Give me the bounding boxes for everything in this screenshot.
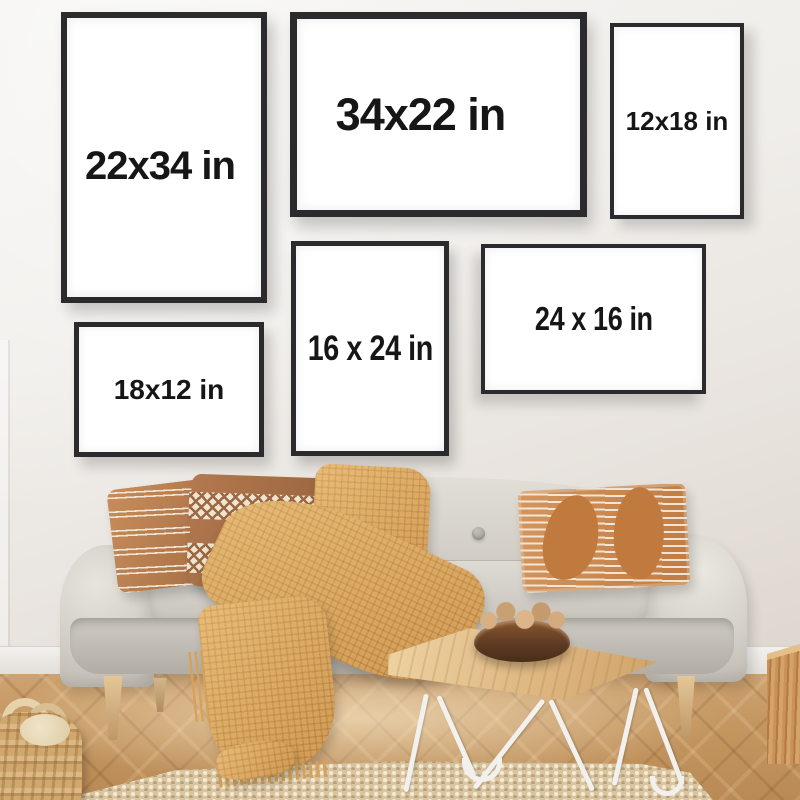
bowl-of-nuts — [480, 602, 566, 632]
basket-contents — [20, 714, 70, 746]
frame-label: 18x12 in — [114, 374, 225, 406]
pillow-leaf-shape — [613, 487, 665, 580]
size-frame-34x22: 34x22 in — [290, 12, 587, 217]
frame-label: 24 x 16 in — [535, 300, 653, 338]
pillow-leaf-shape — [539, 492, 603, 584]
door-edge-line — [8, 340, 10, 658]
frame-label: 16 x 24 in — [307, 329, 432, 369]
room-scene: 22x34 in 34x22 in 12x18 in 16 x 24 in 24… — [0, 0, 800, 800]
size-frame-12x18: 12x18 in — [610, 23, 744, 219]
size-frame-24x16: 24 x 16 in — [481, 244, 706, 394]
size-frame-22x34: 22x34 in — [61, 12, 267, 303]
sofa-button-tuft — [472, 527, 485, 540]
frame-label: 22x34 in — [85, 144, 235, 189]
frame-label: 34x22 in — [336, 89, 506, 141]
door-edge-panel — [0, 340, 8, 658]
wood-block-stool — [767, 646, 800, 764]
size-frame-16x24: 16 x 24 in — [291, 241, 449, 456]
size-frame-18x12: 18x12 in — [74, 322, 264, 457]
leaf-pattern-pillow — [517, 483, 690, 594]
frame-label: 12x18 in — [626, 106, 729, 137]
